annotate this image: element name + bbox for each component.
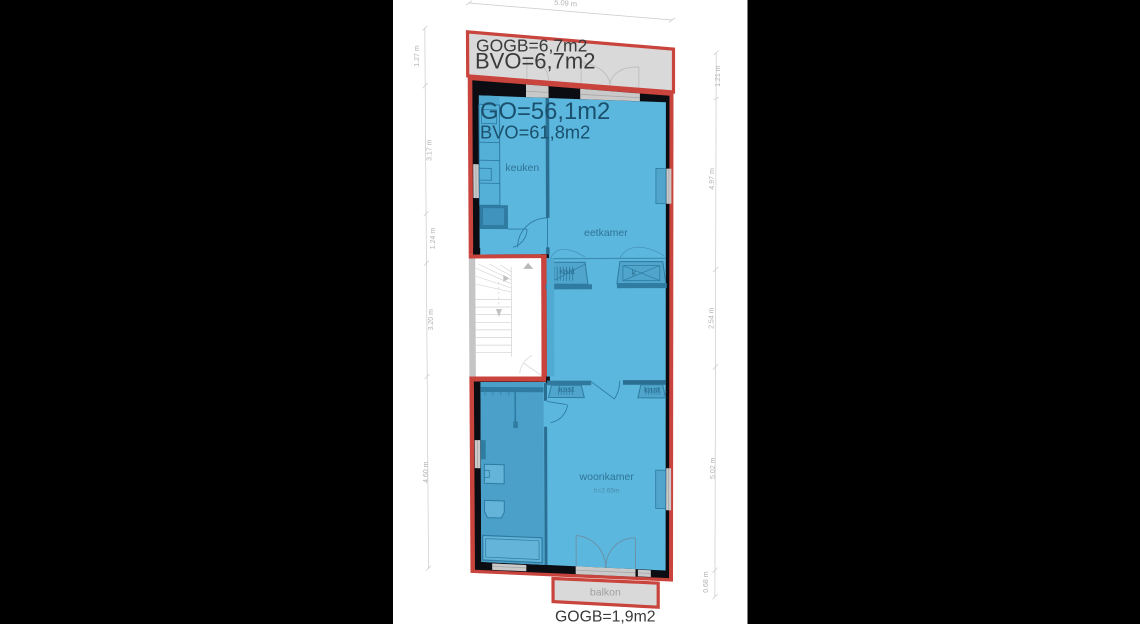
svg-text:kast: kast — [559, 384, 575, 394]
svg-text:balkon: balkon — [590, 587, 621, 599]
svg-text:2.54 m: 2.54 m — [709, 307, 716, 329]
svg-text:4.60 m: 4.60 m — [423, 461, 430, 483]
svg-text:k: k — [632, 268, 637, 278]
svg-text:5.02 m: 5.02 m — [710, 457, 717, 479]
svg-text:3.20 m: 3.20 m — [428, 309, 435, 331]
svg-text:eetkamer: eetkamer — [584, 227, 628, 239]
svg-text:kast: kast — [644, 385, 660, 395]
svg-text:h=2.65m: h=2.65m — [594, 487, 619, 494]
svg-text:GOGB=1,9m2: GOGB=1,9m2 — [555, 609, 656, 624]
svg-text:keuken: keuken — [505, 162, 539, 174]
svg-text:BVO=6,7m2: BVO=6,7m2 — [475, 49, 595, 74]
svg-text:0.68 m: 0.68 m — [703, 571, 710, 593]
svg-text:3.17 m: 3.17 m — [427, 139, 434, 161]
svg-text:woonkamer: woonkamer — [579, 471, 635, 483]
svg-text:1.27 m: 1.27 m — [414, 45, 421, 67]
svg-text:kast: kast — [559, 266, 575, 276]
svg-text:1.21 m: 1.21 m — [715, 65, 722, 87]
svg-text:BVO=61,8m2: BVO=61,8m2 — [480, 122, 590, 143]
svg-text:1.24 m: 1.24 m — [430, 228, 437, 250]
svg-text:4.97 m: 4.97 m — [709, 168, 716, 190]
